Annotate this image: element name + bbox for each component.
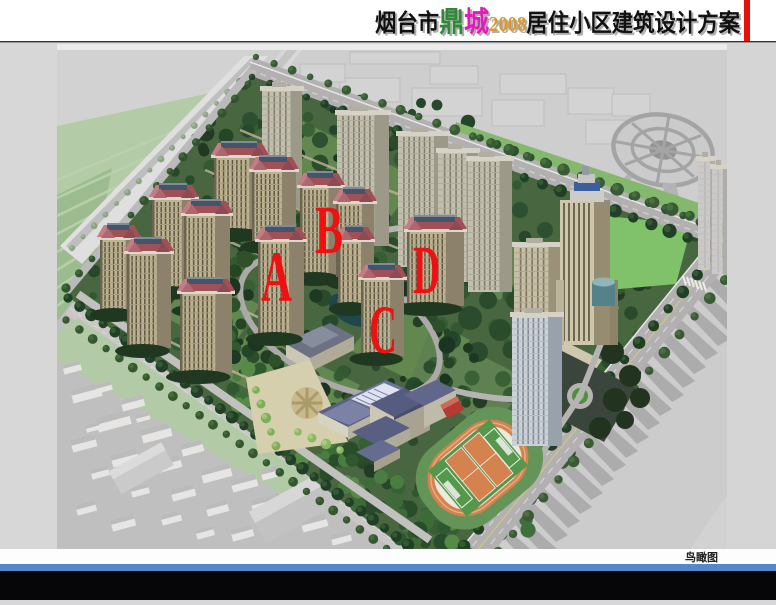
svg-text:鸟瞰图: 鸟瞰图 [685,550,718,564]
svg-text:烟台市鼎城2008居住小区建筑设计方案: 烟台市鼎城2008居住小区建筑设计方案 [375,6,741,37]
svg-text:D: D [413,232,440,308]
svg-text:A: A [261,237,292,317]
svg-text:B: B [315,192,343,268]
svg-text:C: C [369,292,397,368]
